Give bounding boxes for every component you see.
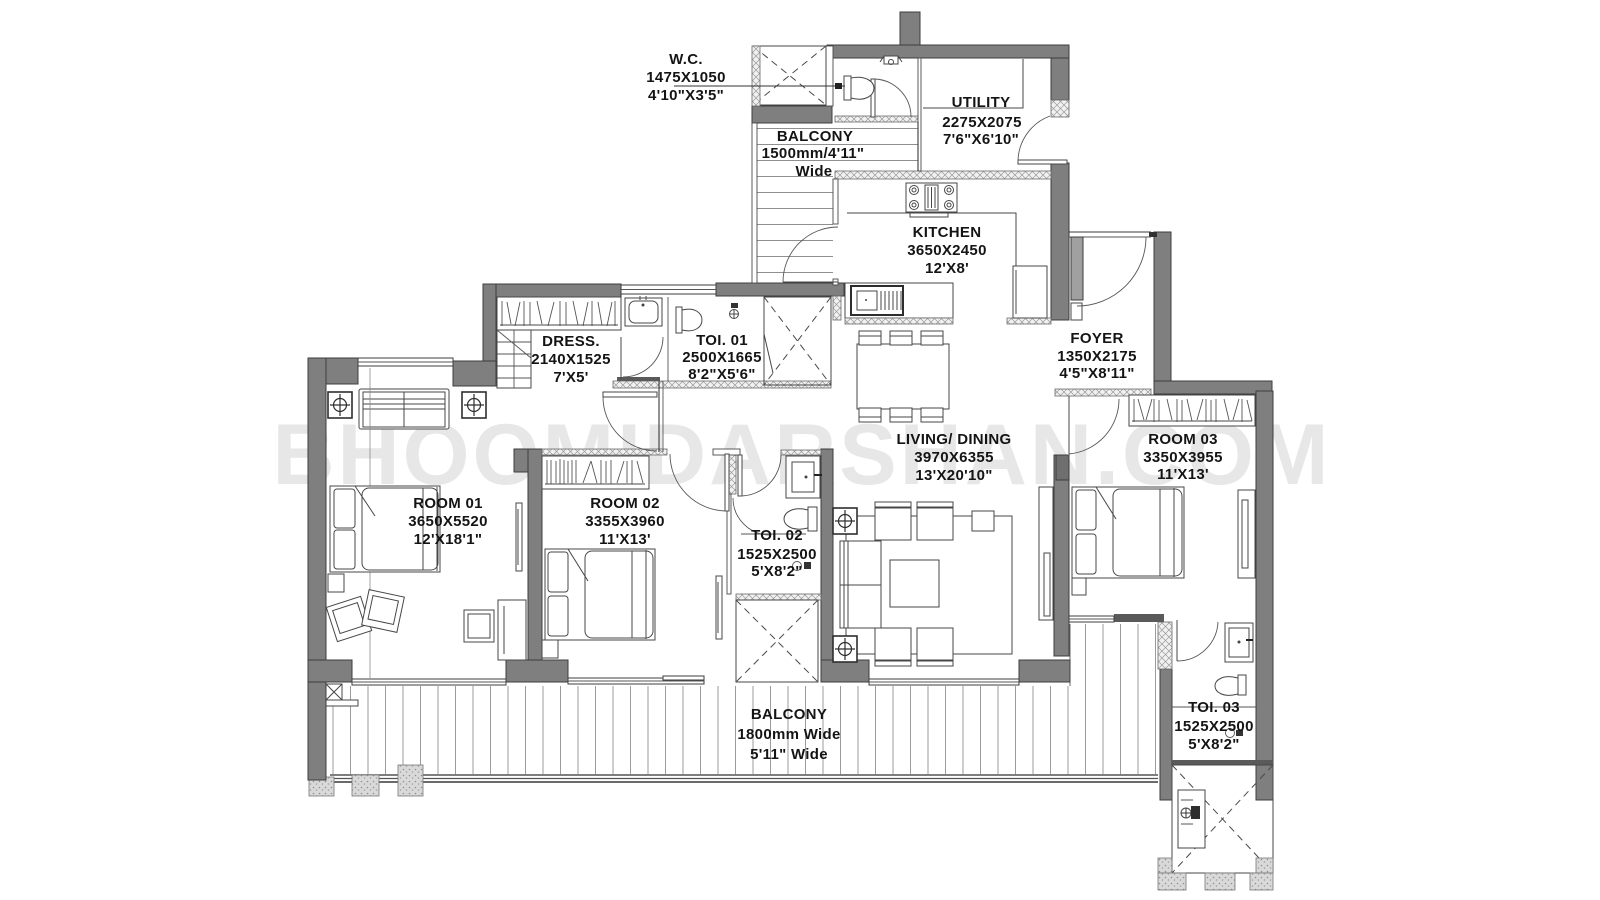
svg-text:UTILITY: UTILITY (952, 94, 1011, 111)
svg-text:11'X13': 11'X13' (599, 531, 651, 548)
svg-text:4'5"X8'11": 4'5"X8'11" (1059, 365, 1134, 382)
svg-text:W.C.: W.C. (669, 51, 703, 68)
svg-text:12'X8': 12'X8' (925, 260, 969, 277)
svg-text:3970X6355: 3970X6355 (914, 449, 993, 466)
svg-text:1350X2175: 1350X2175 (1057, 348, 1136, 365)
svg-text:3355X3960: 3355X3960 (585, 513, 664, 530)
svg-text:TOI. 01: TOI. 01 (696, 332, 748, 349)
svg-text:BALCONY: BALCONY (777, 128, 853, 145)
svg-text:2140X1525: 2140X1525 (531, 351, 610, 368)
svg-text:7'X5': 7'X5' (553, 369, 588, 386)
svg-text:ROOM 02: ROOM 02 (590, 495, 660, 512)
svg-text:KITCHEN: KITCHEN (913, 224, 982, 241)
svg-text:2500X1665: 2500X1665 (682, 349, 761, 366)
svg-text:Wide: Wide (796, 163, 833, 180)
svg-text:3350X3955: 3350X3955 (1143, 449, 1222, 466)
svg-text:13'X20'10": 13'X20'10" (915, 467, 992, 484)
svg-text:ROOM 01: ROOM 01 (413, 495, 483, 512)
svg-text:DRESS.: DRESS. (542, 333, 600, 350)
svg-text:5'X8'2": 5'X8'2" (751, 563, 802, 580)
svg-text:1525X2500: 1525X2500 (737, 546, 816, 563)
svg-text:7'6"X6'10": 7'6"X6'10" (943, 131, 1019, 148)
svg-text:ROOM 03: ROOM 03 (1148, 431, 1218, 448)
svg-text:1500mm/4'11": 1500mm/4'11" (762, 145, 865, 162)
svg-text:3650X5520: 3650X5520 (408, 513, 487, 530)
svg-text:TOI. 02: TOI. 02 (751, 527, 803, 544)
svg-text:1475X1050: 1475X1050 (646, 69, 725, 86)
svg-text:4'10"X3'5": 4'10"X3'5" (648, 87, 724, 104)
svg-text:LIVING/ DINING: LIVING/ DINING (896, 431, 1011, 448)
svg-text:5'11" Wide: 5'11" Wide (750, 746, 828, 763)
svg-text:3650X2450: 3650X2450 (907, 242, 986, 259)
svg-text:1800mm Wide: 1800mm Wide (737, 726, 840, 743)
svg-text:FOYER: FOYER (1070, 330, 1123, 347)
svg-text:11'X13': 11'X13' (1157, 466, 1209, 483)
svg-text:1525X2500: 1525X2500 (1174, 718, 1253, 735)
svg-text:2275X2075: 2275X2075 (942, 114, 1021, 131)
svg-text:BALCONY: BALCONY (751, 706, 827, 723)
svg-text:8'2"X5'6": 8'2"X5'6" (688, 366, 755, 383)
svg-text:TOI. 03: TOI. 03 (1188, 699, 1240, 716)
svg-text:5'X8'2": 5'X8'2" (1188, 736, 1239, 753)
svg-text:12'X18'1": 12'X18'1" (414, 531, 483, 548)
